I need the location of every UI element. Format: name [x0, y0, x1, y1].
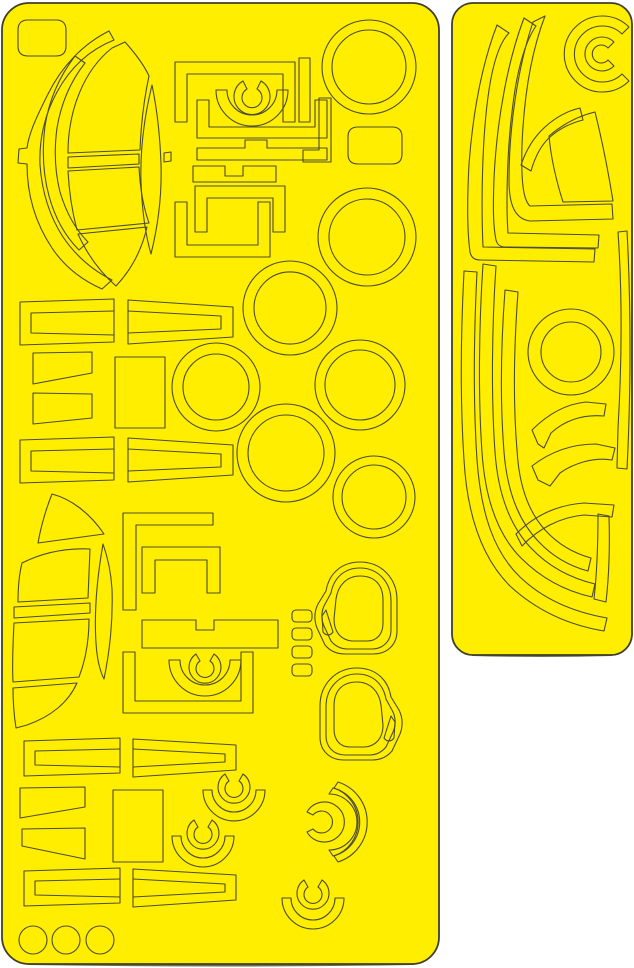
- right-mask-sheet-base: [452, 3, 632, 655]
- paint-mask-scan-canvas: [0, 0, 634, 968]
- mask-sheets-svg: [0, 0, 634, 968]
- left-mask-sheet: [2, 3, 439, 965]
- right-mask-sheet: [452, 3, 632, 656]
